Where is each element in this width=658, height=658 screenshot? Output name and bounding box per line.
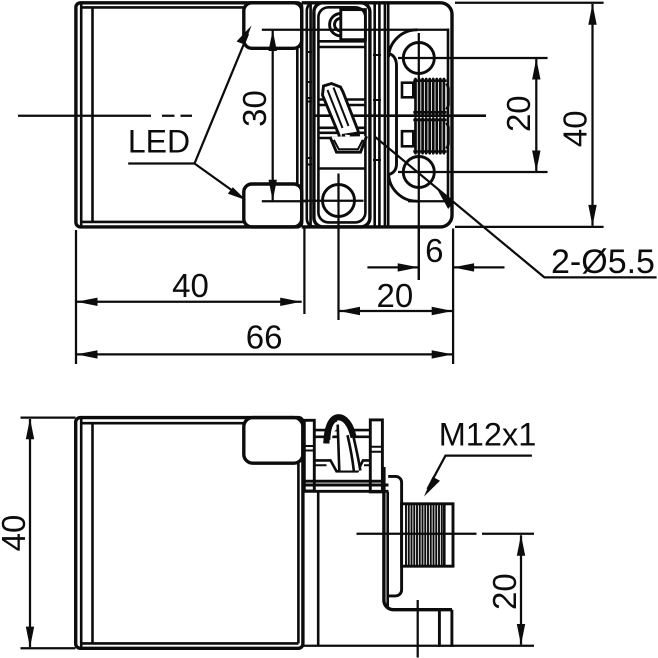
svg-text:M12x1: M12x1 xyxy=(439,417,537,453)
svg-text:6: 6 xyxy=(425,232,443,269)
svg-text:30: 30 xyxy=(236,90,273,127)
svg-text:20: 20 xyxy=(486,573,523,610)
svg-text:40: 40 xyxy=(172,267,209,304)
svg-text:40: 40 xyxy=(557,110,594,147)
svg-text:20: 20 xyxy=(500,95,537,132)
svg-text:40: 40 xyxy=(0,515,32,552)
svg-text:LED: LED xyxy=(128,124,190,160)
svg-text:20: 20 xyxy=(377,277,414,314)
svg-text:66: 66 xyxy=(246,319,283,356)
svg-text:2-Ø5.5: 2-Ø5.5 xyxy=(551,243,655,281)
